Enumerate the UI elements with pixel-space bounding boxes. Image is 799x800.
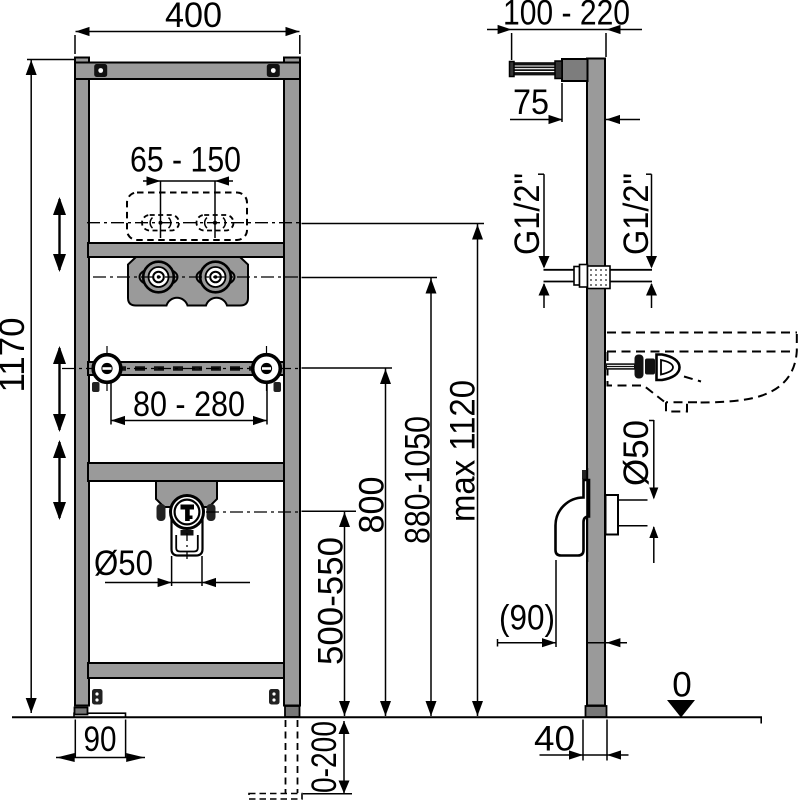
svg-text:max 1120: max 1120 (444, 380, 483, 522)
svg-text:0-200: 0-200 (305, 721, 344, 793)
svg-text:90: 90 (84, 720, 117, 759)
svg-text:880-1050: 880-1050 (399, 416, 438, 544)
svg-text:Ø50: Ø50 (617, 420, 656, 486)
svg-text:0: 0 (672, 666, 691, 705)
svg-text:Ø50: Ø50 (94, 544, 153, 583)
svg-text:(90): (90) (499, 599, 555, 638)
svg-text:40: 40 (534, 720, 575, 759)
svg-text:400: 400 (165, 0, 222, 35)
svg-text:75: 75 (513, 83, 549, 122)
svg-text:1170: 1170 (0, 318, 32, 393)
svg-text:G1/2": G1/2" (508, 173, 547, 255)
svg-text:65 - 150: 65 - 150 (130, 141, 241, 180)
svg-text:100 - 220: 100 - 220 (503, 0, 630, 33)
svg-text:80 - 280: 80 - 280 (133, 385, 245, 424)
svg-text:G1/2": G1/2" (617, 173, 656, 255)
svg-text:500-550: 500-550 (312, 537, 351, 665)
svg-text:800: 800 (353, 477, 392, 534)
